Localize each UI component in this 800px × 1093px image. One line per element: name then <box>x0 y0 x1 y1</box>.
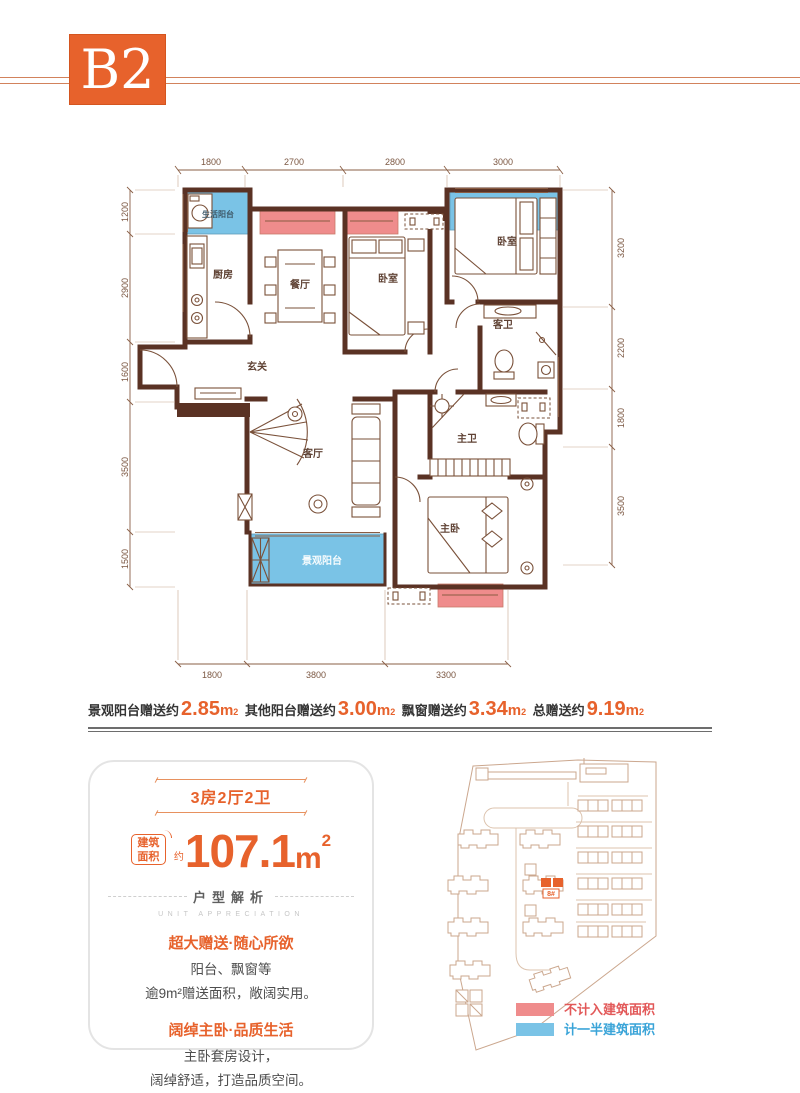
gift-area-strip: 景观阳台赠送约2.85m2 其他阳台赠送约3.00m2 飘窗赠送约3.34m2 … <box>88 698 644 721</box>
dim-left-2: 2900 <box>120 278 130 298</box>
gift-value: 2.85 <box>181 698 220 721</box>
area-value: 107.1 <box>185 832 295 871</box>
dim-top-2: 2700 <box>284 157 304 167</box>
dim-bottom-1: 1800 <box>202 670 222 680</box>
gift-unit: m <box>508 702 521 719</box>
dim-bottom-2: 3800 <box>306 670 326 680</box>
section-title: 户型解析 <box>193 887 269 906</box>
room-living: 客厅 <box>302 447 323 460</box>
gift-label: 其他阳台赠送约 <box>245 700 336 719</box>
room-master-bath: 主卫 <box>457 432 477 445</box>
gift-sup: 2 <box>233 707 238 717</box>
area-label-line1: 建筑 <box>132 836 165 850</box>
unit-type: 3房2厅2卫 <box>90 784 372 808</box>
furniture <box>187 194 556 582</box>
unit-info-card: 3房2厅2卫 建筑 面积 约 107.1 m 2 户型解析 UNIT APPRE… <box>88 760 374 1050</box>
gift-label: 景观阳台赠送约 <box>88 700 179 719</box>
area-label-box: 建筑 面积 <box>131 834 166 865</box>
wall-block <box>177 403 250 417</box>
gift-value: 9.19 <box>587 698 626 721</box>
room-dining: 餐厅 <box>289 278 310 291</box>
legend-label-blue: 计一半建筑面积 <box>564 1022 655 1037</box>
gift-label: 总赠送约 <box>533 700 585 719</box>
plan-badge: B2 <box>69 34 166 105</box>
dim-left-4: 3500 <box>120 457 130 477</box>
gift-label: 飘窗赠送约 <box>402 700 467 719</box>
feature-master: 阔绰主卧·品质生活 主卧套房设计， 阔绰舒适，打造品质空间。 <box>90 1019 372 1092</box>
floorplan-page: { "header": { "badge": "B2" }, "plan": {… <box>0 0 800 1093</box>
feature-line: 阳台、飘窗等 <box>90 958 372 982</box>
gift-strip-rule <box>88 727 712 732</box>
gift-value: 3.34 <box>469 698 508 721</box>
floor-plan: 1800 2700 2800 3000 1200 2900 1600 3500 … <box>90 132 710 688</box>
room-life-balcony: 生活阳台 <box>202 209 234 219</box>
entry-door-arc <box>140 350 177 387</box>
dim-left-5: 1500 <box>120 549 130 569</box>
room-view-balcony: 景观阳台 <box>302 554 342 567</box>
feature-title: 超大赠送·随心所欲 <box>90 932 372 953</box>
gift-item-other-balcony: 其他阳台赠送约3.00m2 <box>245 698 395 721</box>
dim-top-4: 3000 <box>493 157 513 167</box>
section-divider: 户型解析 <box>108 887 354 906</box>
gift-unit: m <box>626 702 639 719</box>
gift-value: 3.00 <box>338 698 377 721</box>
area-sup: 2 <box>322 831 331 851</box>
divider-line-right <box>275 896 354 897</box>
dim-bottom-3: 3300 <box>436 670 456 680</box>
section-subtitle: UNIT APPRECIATION <box>90 911 372 918</box>
gift-item-bay-window: 飘窗赠送约3.34m2 <box>402 698 526 721</box>
area-label-line2: 面积 <box>132 850 165 864</box>
deco-line-top <box>156 779 306 780</box>
area-row: 建筑 面积 约 107.1 m 2 <box>90 819 372 871</box>
gift-item-view-balcony: 景观阳台赠送约2.85m2 <box>88 698 238 721</box>
room-guest-bath: 客卫 <box>492 318 513 331</box>
room-kitchen: 厨房 <box>213 268 233 281</box>
feature-gift: 超大赠送·随心所欲 阳台、飘窗等 逾9m²赠送面积，敞阔实用。 <box>90 932 372 1005</box>
room-master-bed: 主卧 <box>440 522 460 535</box>
dim-top-1: 1800 <box>201 157 221 167</box>
feature-line: 主卧套房设计， <box>90 1045 372 1069</box>
gift-sup: 2 <box>639 707 644 717</box>
legend-swatch-red <box>516 1003 554 1016</box>
divider-line-left <box>108 896 187 897</box>
feature-title: 阔绰主卧·品质生活 <box>90 1019 372 1040</box>
area-about: 约 <box>174 848 184 863</box>
plan-badge-text: B2 <box>80 43 154 97</box>
gift-sup: 2 <box>390 707 395 717</box>
highlighted-building-label: 8# <box>547 891 555 898</box>
area-unit: m <box>295 847 322 871</box>
dim-left-1: 1200 <box>120 202 130 222</box>
dim-left-3: 1600 <box>120 362 130 382</box>
dim-right-3: 1800 <box>616 408 626 428</box>
gift-unit: m <box>377 702 390 719</box>
gift-item-total: 总赠送约9.19m2 <box>533 698 644 721</box>
room-bedroom-top: 卧室 <box>497 235 517 248</box>
room-bedroom-mid: 卧室 <box>378 272 398 285</box>
room-foyer: 玄关 <box>247 360 267 373</box>
dim-right-1: 3200 <box>616 238 626 258</box>
dim-top-3: 2800 <box>385 157 405 167</box>
legend-swatch-blue <box>516 1023 554 1036</box>
site-plan: 8# 不计入建筑面积 计一半建筑面积 <box>428 758 750 1088</box>
dim-right-4: 3500 <box>616 496 626 516</box>
dim-right-2: 2200 <box>616 338 626 358</box>
feature-line: 阔绰舒适，打造品质空间。 <box>90 1069 372 1093</box>
legend-label-red: 不计入建筑面积 <box>564 1002 655 1017</box>
gift-unit: m <box>220 702 233 719</box>
deco-line-bottom <box>156 812 306 813</box>
gift-sup: 2 <box>521 707 526 717</box>
feature-line: 逾9m²赠送面积，敞阔实用。 <box>90 982 372 1006</box>
